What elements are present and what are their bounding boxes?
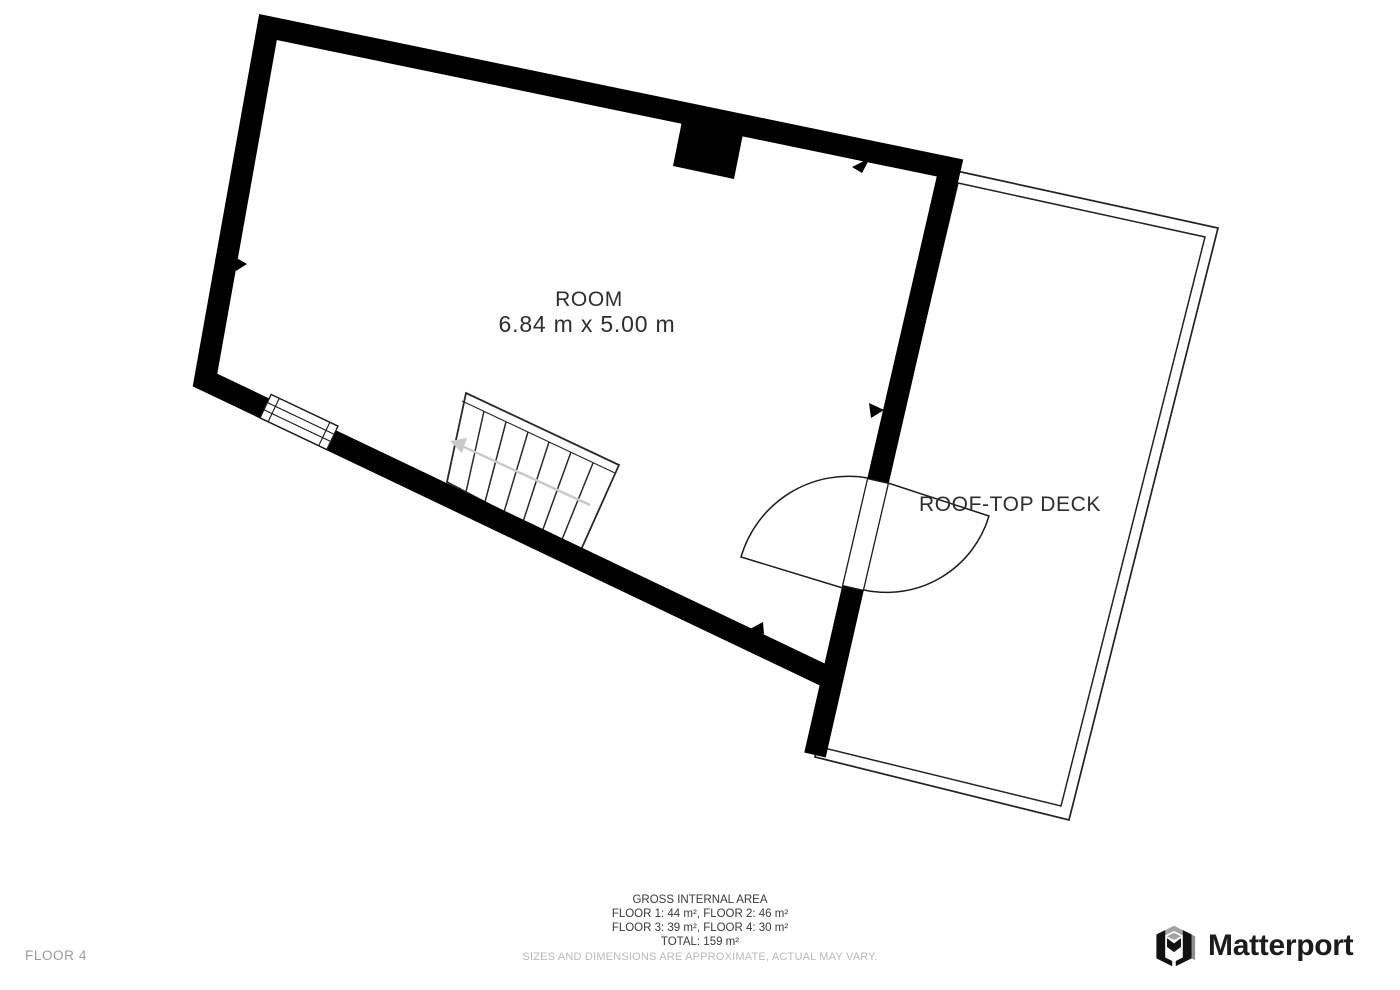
- floor-indicator: FLOOR 4: [25, 948, 87, 963]
- floor-plan: ROOM 6.84 m x 5.00 m ROOF-TOP DECK: [0, 0, 1400, 990]
- room-dimensions-label: 6.84 m x 5.00 m: [499, 311, 676, 337]
- gross-area-title: GROSS INTERNAL AREA: [390, 893, 1010, 907]
- total-area-line: TOTAL: 159 m²: [390, 935, 1010, 949]
- room-label: ROOM: [555, 288, 623, 311]
- wall-outline: [205, 27, 950, 682]
- door-opening: [843, 479, 889, 591]
- matterport-icon: [1150, 924, 1198, 968]
- staircase-rail-line: [462, 401, 615, 473]
- area-summary: GROSS INTERNAL AREA FLOOR 1: 44 m², FLOO…: [390, 893, 1010, 964]
- stair-tread: [523, 442, 549, 522]
- floorplan-page: { "plan": { "room_label": "ROOM", "room_…: [0, 0, 1400, 990]
- stair-tread: [542, 452, 571, 532]
- area-line-2: FLOOR 3: 39 m², FLOOR 4: 30 m²: [390, 921, 1010, 935]
- matterport-logo: Matterport: [1150, 924, 1353, 968]
- window-symbol: [260, 394, 338, 449]
- matterport-wordmark: Matterport: [1208, 924, 1353, 968]
- deck-label: ROOF-TOP DECK: [919, 493, 1101, 516]
- disclaimer-text: SIZES AND DIMENSIONS ARE APPROXIMATE, AC…: [390, 950, 1010, 964]
- stair-tread: [561, 463, 593, 542]
- area-line-1: FLOOR 1: 44 m², FLOOR 2: 46 m²: [390, 907, 1010, 921]
